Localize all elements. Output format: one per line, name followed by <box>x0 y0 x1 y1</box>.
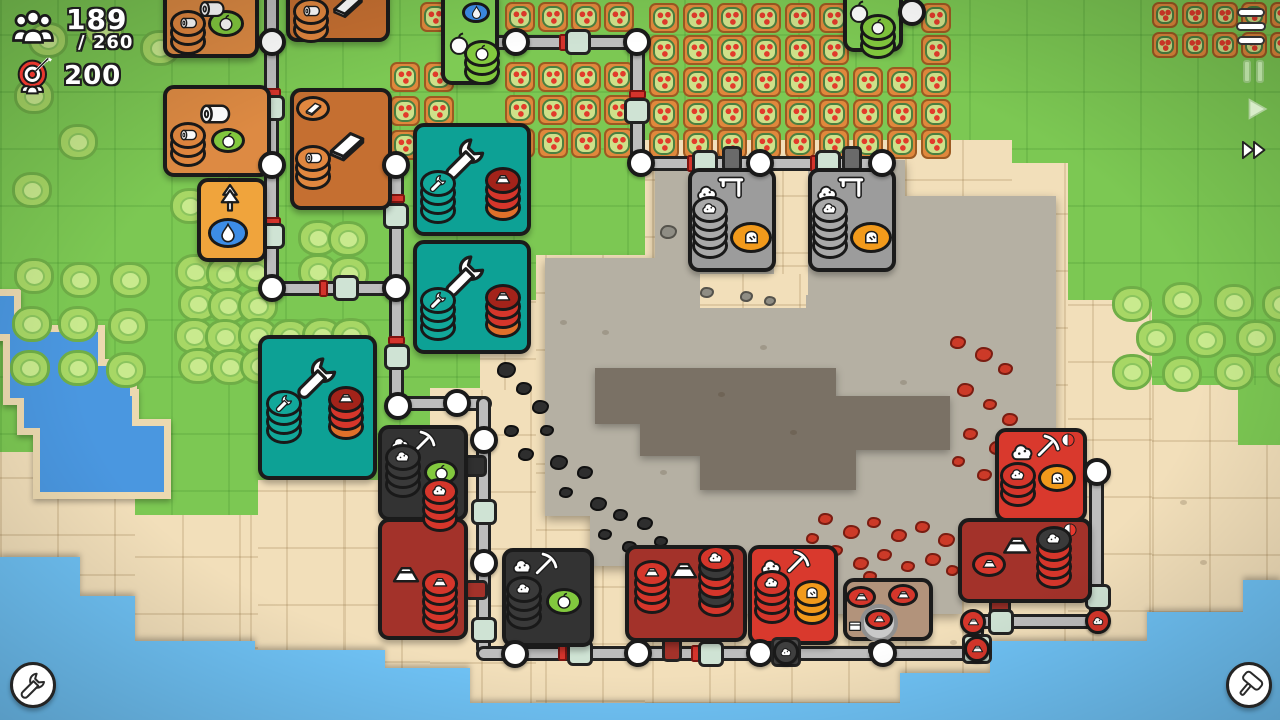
resource-coin-ingot <box>485 284 521 311</box>
rock-plateau-upper <box>836 396 950 450</box>
berry-field-tile <box>505 95 535 125</box>
resource-coin-blob <box>1036 526 1072 553</box>
pebble <box>900 380 907 385</box>
road-connector[interactable] <box>988 609 1014 635</box>
road-segment[interactable] <box>476 646 988 661</box>
tree <box>1162 356 1202 392</box>
tools-button[interactable] <box>10 662 56 708</box>
resource-coin-blob <box>506 576 542 603</box>
resource-coin-plank <box>296 96 330 121</box>
tree <box>1214 354 1254 390</box>
resource-coin-log <box>170 10 206 37</box>
berry-field-tile <box>921 35 951 65</box>
resource-coin-blob <box>692 196 728 223</box>
road-node[interactable] <box>258 28 286 56</box>
road-node[interactable] <box>627 149 655 177</box>
berry-field-tile <box>649 129 679 159</box>
berry-field-tile <box>505 2 535 32</box>
road-node[interactable] <box>869 639 897 667</box>
resource-coin-ingot <box>865 609 893 630</box>
resource-coin-apple <box>464 40 500 67</box>
wrench-icon <box>18 670 48 700</box>
pebble <box>790 430 797 435</box>
pebble <box>718 392 725 397</box>
build-button[interactable] <box>1226 662 1272 708</box>
pause-icon <box>1243 60 1251 83</box>
berry-field-tile <box>921 67 951 97</box>
population-count: 189 <box>66 6 133 34</box>
berry-field-tile <box>649 99 679 129</box>
resource-coin-ingot <box>328 386 364 413</box>
pebble <box>1180 500 1187 505</box>
resource-coin-bread <box>1038 464 1076 492</box>
berry-field-tile <box>717 67 747 97</box>
berry-field-tile <box>604 2 634 32</box>
tree <box>1162 282 1202 318</box>
sand-patch <box>700 274 806 308</box>
resource-coin-log <box>170 122 206 149</box>
road-node[interactable] <box>470 426 498 454</box>
berry-field-tile <box>571 128 601 158</box>
berry-field-tile <box>1182 2 1208 28</box>
plank-icon <box>330 0 366 22</box>
berry-field-tile <box>424 96 454 126</box>
road-connector[interactable] <box>565 29 591 55</box>
menu-button[interactable] <box>1236 8 1266 45</box>
pebble <box>950 640 957 645</box>
deposit-stone <box>740 291 753 302</box>
berry-field-tile <box>538 128 568 158</box>
resource-coin-wrench <box>266 390 302 417</box>
berry-field-tile <box>1152 2 1178 28</box>
berry-field-tile <box>853 99 883 129</box>
resource-coin-blob <box>812 196 848 223</box>
tree <box>1214 284 1254 320</box>
road-node[interactable] <box>470 549 498 577</box>
berry-field-tile <box>649 3 679 33</box>
road-node[interactable] <box>746 639 774 667</box>
pick-icon <box>1034 432 1062 460</box>
berry-field-tile <box>538 2 568 32</box>
resource-coin-blob <box>754 570 790 597</box>
tree <box>58 350 98 386</box>
road-connector[interactable] <box>624 98 650 124</box>
resource-coin-apple <box>546 588 582 615</box>
berry-field-tile <box>921 99 951 129</box>
road-node[interactable] <box>501 640 529 668</box>
tree <box>12 172 52 208</box>
resource-coin-bread <box>794 580 830 607</box>
game-map[interactable] <box>0 0 1280 720</box>
berry-field-tile <box>785 99 815 129</box>
game-viewport: 189 / 260 200 <box>0 0 1280 720</box>
berry-field-tile <box>683 67 713 97</box>
resource-coin-apple <box>860 14 896 41</box>
resource-coin-blob <box>698 545 734 572</box>
resource-coin-ingot <box>485 167 521 194</box>
population-cap: / 260 <box>78 34 133 52</box>
box-icon <box>845 615 865 635</box>
cargo-token-blob[interactable] <box>773 639 799 665</box>
goal-indicator: 200 <box>14 56 121 96</box>
ingot-icon <box>666 554 702 590</box>
play-icon <box>1243 96 1269 122</box>
road-node[interactable] <box>384 392 412 420</box>
road-connector[interactable] <box>471 499 497 525</box>
berry-field-tile <box>538 62 568 92</box>
tree <box>10 350 50 386</box>
road-node[interactable] <box>623 28 651 56</box>
resource-coin-ingot <box>888 584 918 606</box>
road-connector[interactable] <box>384 344 410 370</box>
road-connector[interactable] <box>333 275 359 301</box>
road-node[interactable] <box>443 389 471 417</box>
resource-coin-drop <box>462 2 490 23</box>
berry-field-tile <box>1182 32 1208 58</box>
berry-field-tile <box>683 35 713 65</box>
berry-field-tile <box>887 99 917 129</box>
road-node[interactable] <box>258 151 286 179</box>
berry-field-tile <box>853 67 883 97</box>
resource-coin-log <box>293 0 329 25</box>
tree-icon <box>212 182 248 218</box>
berry-field-tile <box>887 67 917 97</box>
resource-coin-bread <box>730 222 772 253</box>
road-node[interactable] <box>746 149 774 177</box>
ingot-icon <box>998 528 1036 566</box>
population-indicator: 189 / 260 <box>8 6 133 52</box>
tree <box>60 262 100 298</box>
tree <box>1186 322 1226 358</box>
tree <box>106 352 146 388</box>
pick-icon <box>532 550 560 578</box>
play-button[interactable] <box>1243 96 1269 122</box>
tree <box>58 306 98 342</box>
pebble <box>660 470 667 475</box>
road-node[interactable] <box>1083 458 1111 486</box>
hammer-icon <box>1233 669 1265 701</box>
berry-field-tile <box>785 67 815 97</box>
resource-coin-log <box>295 145 331 172</box>
deposit-iron <box>952 456 965 467</box>
resource-coin-blob <box>422 478 458 505</box>
road-node[interactable] <box>382 274 410 302</box>
ingot-icon <box>388 558 424 594</box>
tree <box>58 124 98 160</box>
tree <box>328 221 368 257</box>
cargo-token-ingot[interactable] <box>964 636 990 662</box>
road-node[interactable] <box>258 274 286 302</box>
berry-field-tile <box>921 129 951 159</box>
berry-field-tile <box>819 67 849 97</box>
berry-field-tile <box>1270 32 1280 58</box>
plank-icon <box>326 124 368 166</box>
population-icon <box>8 6 58 52</box>
tree <box>108 308 148 344</box>
pebble <box>602 330 609 335</box>
resource-coin-drop <box>208 218 248 248</box>
pebble <box>760 345 767 350</box>
road-node[interactable] <box>624 639 652 667</box>
berry-field-tile <box>1152 32 1178 58</box>
resource-coin-wrench <box>420 170 456 197</box>
berry-field-tile <box>505 62 535 92</box>
road-connector[interactable] <box>471 617 497 643</box>
berry-field-tile <box>819 99 849 129</box>
berry-field-tile <box>717 99 747 129</box>
resource-coin-ingot <box>422 570 458 597</box>
menu-icon <box>1236 8 1266 45</box>
halfmoon-icon <box>1060 432 1076 448</box>
berry-field-tile <box>390 96 420 126</box>
goal-count: 200 <box>64 61 121 91</box>
fast-forward-button[interactable] <box>1238 136 1270 164</box>
pebble <box>560 320 567 325</box>
tree <box>1136 320 1176 356</box>
road-connector[interactable] <box>698 641 724 667</box>
road-node[interactable] <box>382 151 410 179</box>
resource-coin-wrench <box>420 287 456 314</box>
berry-field-tile <box>649 35 679 65</box>
resource-coin-bread <box>850 222 892 253</box>
berry-field-tile <box>571 62 601 92</box>
resource-coin-blob <box>385 444 421 471</box>
resource-coin-ingot <box>634 560 670 587</box>
road-flow-marker <box>319 280 328 297</box>
berry-field-tile <box>717 3 747 33</box>
rock-plateau-upper <box>700 456 856 490</box>
berry-field-tile <box>785 35 815 65</box>
tree <box>1112 286 1152 322</box>
berry-field-tile <box>538 95 568 125</box>
berry-field-tile <box>390 62 420 92</box>
road-node[interactable] <box>868 149 896 177</box>
berry-field-tile <box>751 99 781 129</box>
goal-target-icon <box>14 56 54 96</box>
berry-field-tile <box>751 3 781 33</box>
pebble <box>1200 560 1207 565</box>
berry-field-tile <box>649 67 679 97</box>
pick-icon <box>784 548 812 576</box>
deposit-iron <box>806 533 819 544</box>
pause-button[interactable] <box>1243 60 1264 83</box>
berry-field-tile <box>1212 2 1238 28</box>
resource-coin-blob <box>1000 462 1036 489</box>
tree <box>110 262 150 298</box>
berry-field-tile <box>717 35 747 65</box>
berry-field-tile <box>751 67 781 97</box>
berry-field-tile <box>571 2 601 32</box>
deposit-stone <box>764 296 776 306</box>
berry-field-tile <box>1212 32 1238 58</box>
berry-field-tile <box>751 35 781 65</box>
berry-field-tile <box>571 95 601 125</box>
berry-field-tile <box>683 3 713 33</box>
rock-plateau-upper <box>595 368 836 424</box>
berry-field-tile <box>1270 2 1280 28</box>
road-node[interactable] <box>502 28 530 56</box>
tree <box>1112 354 1152 390</box>
cargo-token-blob[interactable] <box>1085 608 1111 634</box>
berry-field-tile <box>683 99 713 129</box>
tree <box>12 306 52 342</box>
cargo-token-ingot[interactable] <box>960 609 986 635</box>
tree <box>14 258 54 294</box>
berry-field-tile <box>785 3 815 33</box>
fast-forward-icon <box>1238 136 1270 164</box>
tree <box>1236 320 1276 356</box>
rock-plateau-upper <box>640 424 856 456</box>
deposit-coal <box>497 362 516 378</box>
